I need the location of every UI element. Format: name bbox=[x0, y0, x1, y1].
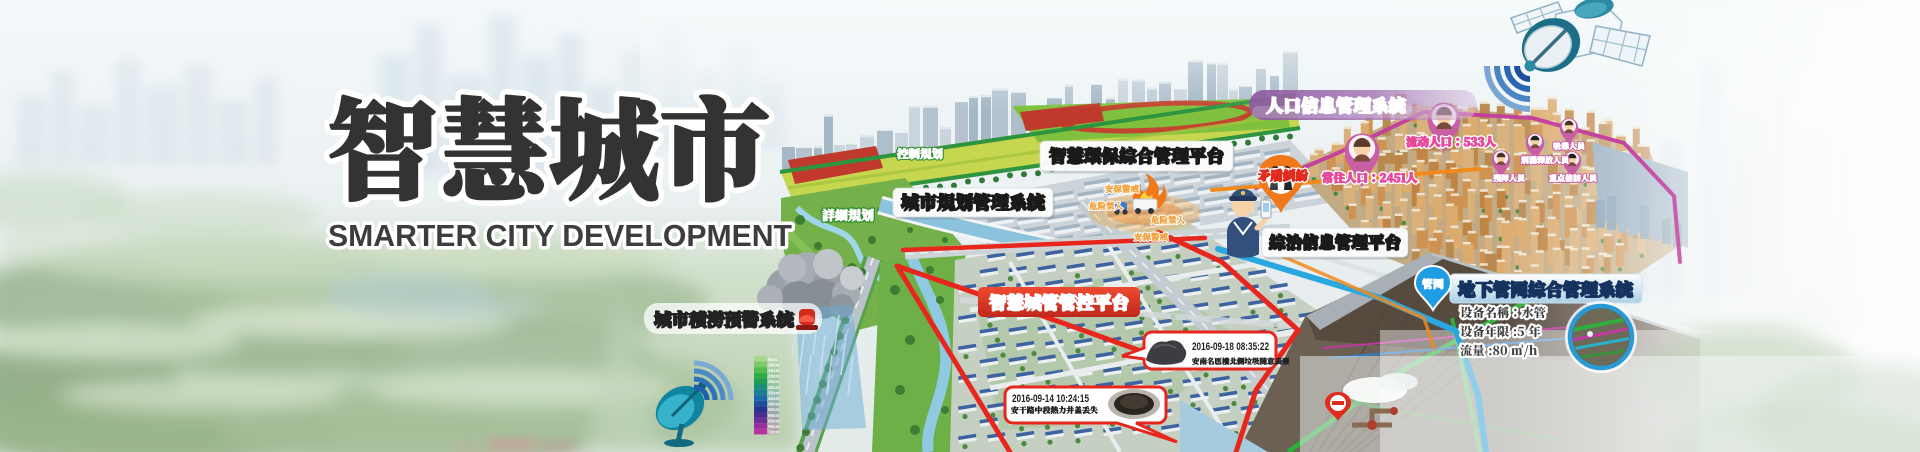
svg-text:40cm: 40cm bbox=[768, 396, 780, 401]
svg-text:55cm: 55cm bbox=[768, 413, 780, 418]
svg-text:50cm: 50cm bbox=[768, 407, 780, 412]
svg-text:10cm: 10cm bbox=[768, 362, 780, 367]
svg-text:60cm: 60cm bbox=[768, 418, 780, 423]
svg-text:20cm: 20cm bbox=[768, 374, 780, 379]
svg-text:70cm: 70cm bbox=[768, 430, 780, 435]
svg-text:2016-09-14 10:24:15: 2016-09-14 10:24:15 bbox=[1012, 393, 1089, 405]
svg-text:30cm: 30cm bbox=[768, 385, 780, 390]
svg-text:35cm: 35cm bbox=[768, 390, 780, 395]
svg-text:SMARTER CITY DEVELOPMENT: SMARTER CITY DEVELOPMENT bbox=[328, 218, 792, 253]
svg-text:2016-09-18 08:35:22: 2016-09-18 08:35:22 bbox=[1192, 341, 1269, 353]
svg-text:65cm: 65cm bbox=[768, 424, 780, 429]
svg-text:25cm: 25cm bbox=[768, 379, 780, 384]
svg-text:15cm: 15cm bbox=[768, 368, 780, 373]
svg-text:5cm: 5cm bbox=[768, 357, 777, 362]
svg-text:45cm: 45cm bbox=[768, 402, 780, 407]
